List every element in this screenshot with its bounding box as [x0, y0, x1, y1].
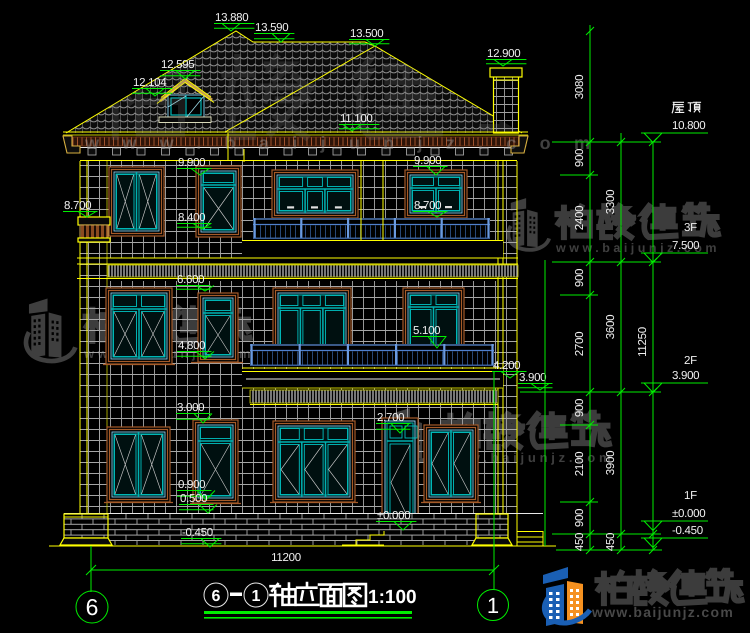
svg-text:3600: 3600 [605, 315, 617, 339]
svg-text:11.100: 11.100 [340, 113, 373, 125]
svg-text:12.104: 12.104 [133, 77, 167, 89]
svg-text:3900: 3900 [605, 451, 617, 475]
svg-text:4.200: 4.200 [493, 360, 520, 372]
svg-text:4.800: 4.800 [178, 340, 205, 352]
svg-text:3080: 3080 [574, 75, 586, 99]
svg-text:10.800: 10.800 [672, 120, 705, 132]
svg-text:1F: 1F [684, 490, 697, 502]
svg-text:2100: 2100 [574, 452, 586, 476]
svg-text:1: 1 [487, 593, 499, 618]
svg-text:5.100: 5.100 [413, 325, 440, 337]
svg-text:-0.450: -0.450 [182, 527, 213, 539]
svg-text:11200: 11200 [271, 552, 301, 564]
svg-text:12.595: 12.595 [161, 59, 194, 71]
svg-text:0.500: 0.500 [180, 493, 207, 505]
svg-text:3.000: 3.000 [177, 402, 204, 414]
svg-text:9.900: 9.900 [414, 155, 441, 167]
svg-text:900: 900 [574, 399, 586, 417]
svg-text:8.400: 8.400 [178, 212, 205, 224]
svg-text:7.500: 7.500 [672, 240, 699, 252]
svg-text:6: 6 [86, 594, 99, 620]
svg-text:13.500: 13.500 [350, 28, 383, 40]
svg-text:11250: 11250 [637, 327, 649, 357]
svg-text:13.590: 13.590 [255, 22, 288, 34]
svg-text:12.900: 12.900 [487, 48, 520, 60]
svg-text:900: 900 [574, 149, 586, 167]
svg-text:6.600: 6.600 [177, 274, 204, 286]
svg-text:1:100: 1:100 [368, 587, 417, 608]
svg-text:8.700: 8.700 [64, 200, 91, 212]
svg-text:2F: 2F [684, 355, 697, 367]
svg-text:-0.450: -0.450 [672, 525, 703, 537]
svg-text:8.700: 8.700 [414, 200, 441, 212]
svg-text:±0.000: ±0.000 [377, 510, 410, 522]
svg-text:0.900: 0.900 [178, 479, 205, 491]
svg-text:450: 450 [574, 533, 586, 551]
svg-text:3F: 3F [684, 222, 697, 234]
svg-text:13.880: 13.880 [215, 12, 248, 24]
svg-text:900: 900 [574, 509, 586, 527]
svg-text:3.900: 3.900 [519, 372, 546, 384]
svg-text:www.baijunjz.com: www.baijunjz.com [591, 604, 734, 620]
svg-text:3300: 3300 [605, 190, 617, 214]
svg-text:2700: 2700 [574, 332, 586, 356]
svg-text:6: 6 [212, 588, 221, 605]
svg-text:2.700: 2.700 [377, 412, 404, 424]
svg-text:900: 900 [574, 269, 586, 287]
svg-text:9.900: 9.900 [178, 157, 205, 169]
svg-text:2400: 2400 [574, 206, 586, 230]
svg-text:1: 1 [252, 588, 261, 605]
svg-text:450: 450 [605, 533, 617, 551]
svg-text:3.900: 3.900 [672, 370, 699, 382]
svg-text:±0.000: ±0.000 [672, 508, 705, 520]
